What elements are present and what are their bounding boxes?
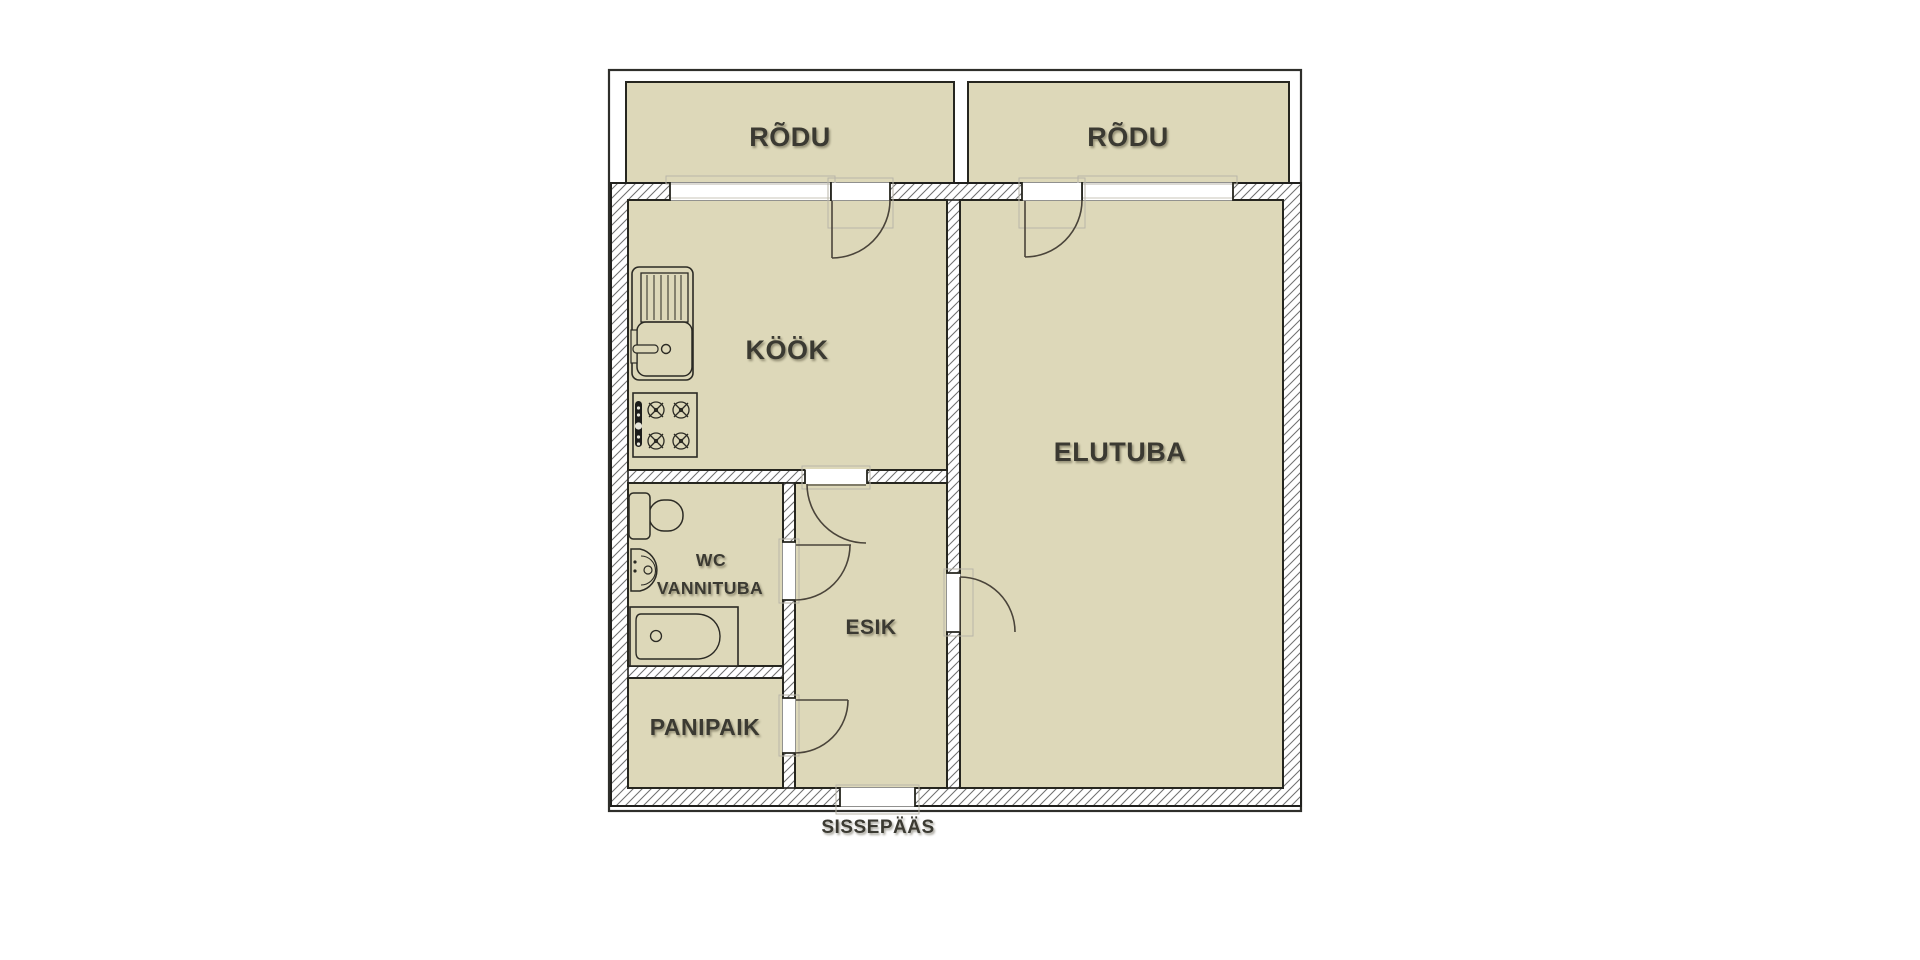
bathtub-icon bbox=[630, 607, 738, 666]
room-living-room bbox=[960, 200, 1283, 788]
wall-kitchen-bottom bbox=[628, 470, 947, 483]
label-bathroom-line2: VANNITUBA bbox=[657, 578, 763, 598]
label-bathroom-line1: WC bbox=[696, 550, 726, 570]
floor-plan-drawing: RÕDU RÕDU KÖÖK ELUTUBA WC VANNITUBA ESIK… bbox=[0, 0, 1920, 960]
entrance-opening bbox=[836, 785, 919, 814]
sink-icon bbox=[631, 267, 693, 380]
label-kitchen: KÖÖK bbox=[746, 335, 829, 365]
floor-plan-page: RÕDU RÕDU KÖÖK ELUTUBA WC VANNITUBA ESIK… bbox=[0, 0, 1920, 960]
label-balcony-right: RÕDU bbox=[1087, 121, 1169, 152]
label-entrance: SISSEPÄÄS bbox=[821, 817, 934, 838]
wall-kitchen-livingroom bbox=[947, 200, 960, 788]
wall-bathroom-bottom bbox=[628, 666, 783, 678]
label-balcony-left: RÕDU bbox=[749, 121, 831, 152]
label-living-room: ELUTUBA bbox=[1054, 437, 1187, 467]
label-storage: PANIPAIK bbox=[650, 714, 761, 740]
stove-icon bbox=[633, 393, 697, 457]
label-hallway: ESIK bbox=[845, 616, 896, 639]
